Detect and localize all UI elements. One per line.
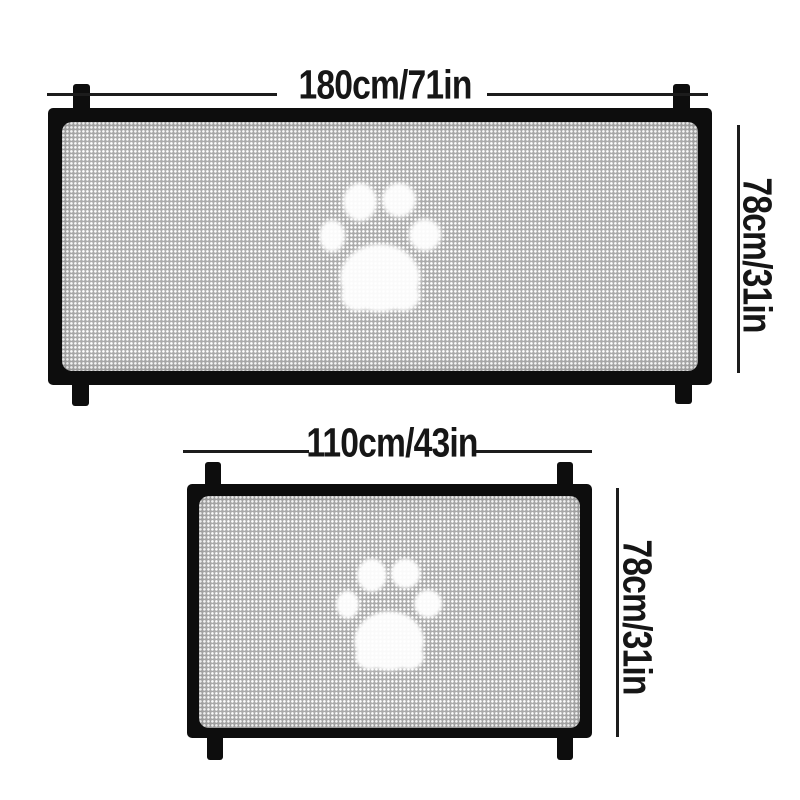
- width-dimension-line-right: [487, 93, 708, 96]
- paw-print-icon: [331, 557, 449, 673]
- paw-print-icon: [319, 181, 443, 315]
- height-dimension-label: 78cm/31in: [737, 177, 778, 332]
- height-dimension-label: 78cm/31in: [617, 539, 658, 694]
- width-dimension-label: 110cm/43in: [306, 423, 477, 464]
- product-size-diagram: 180cm/71in 78cm/31in 110cm/43in 78cm/31i…: [0, 0, 800, 800]
- width-dimension-line-right: [476, 450, 592, 453]
- width-dimension-line-left: [183, 450, 309, 453]
- width-dimension-line-left: [47, 93, 277, 96]
- width-dimension-label: 180cm/71in: [298, 65, 471, 106]
